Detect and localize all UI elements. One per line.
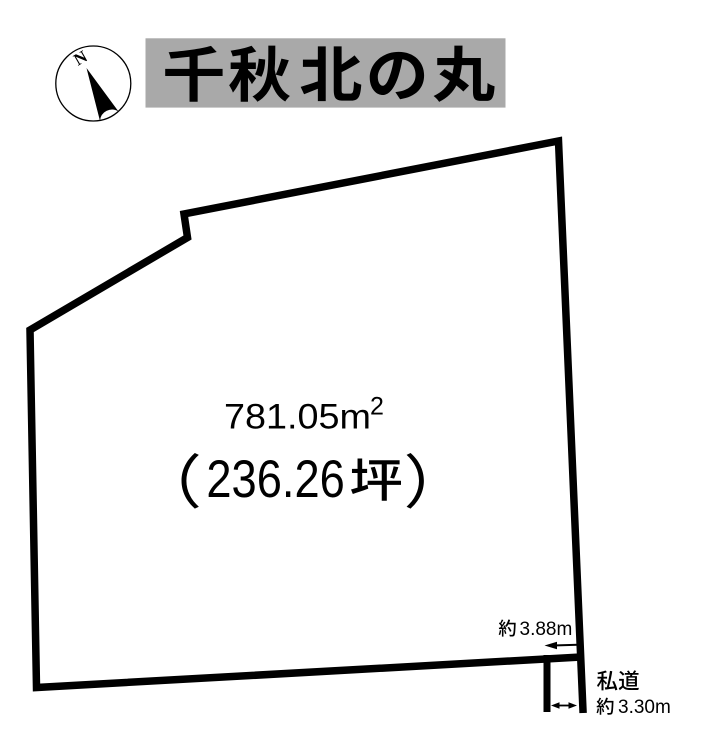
svg-text:2: 2 xyxy=(370,393,384,421)
svg-text:781.05m: 781.05m xyxy=(224,397,371,436)
svg-text:3.30m: 3.30m xyxy=(618,697,671,718)
svg-text:236.26: 236.26 xyxy=(206,450,344,509)
svg-text:3.88m: 3.88m xyxy=(520,619,573,640)
